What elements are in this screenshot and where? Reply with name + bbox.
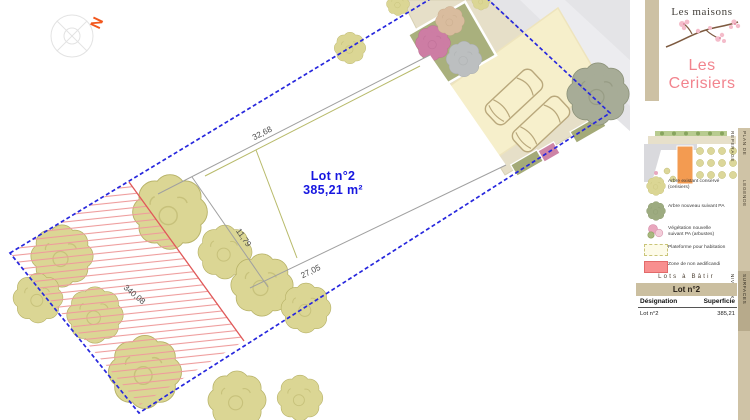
legend-item-non-aedificandi: Zone de non aedificandi [644,258,726,273]
lot-table: Désignation Superficie Lot n°2 385,21 [638,298,737,317]
tab-surfaces-niveaux: SURFACES NIVEAUX [738,274,750,330]
section-title: Lots à Bâtir [636,274,737,280]
platform-swatch [644,241,668,256]
lot-area-label: 385,21 m² [303,183,363,197]
site-plan-drawing: N 32,68 11,79 27,05 340,08 Lot n°2 385,2… [0,0,632,420]
brand-block: Les maisons Les Cerisiers [656,6,748,93]
gray-tree-icon [446,41,481,76]
shrubs-icon [644,222,668,240]
tab-legende: LEGENDE [738,180,750,216]
legend-item-existing-tree: Arbre existant conservé (cerisiers) [644,175,726,197]
legend-item-new-vegetation: Végétation nouvelle suivant PA (arbustes… [644,222,726,240]
lot-name-label: Lot n°2 [311,169,356,183]
cherry-branch-illustration [660,18,744,52]
site-plan-page: N 32,68 11,79 27,05 340,08 Lot n°2 385,2… [0,0,750,420]
overhanging-tree-icon [567,63,629,125]
dimension-bottom: 27,05 [299,262,322,280]
new-tree-icon [644,200,668,222]
brand-name: Les Cerisiers [656,57,748,93]
table-row: Lot n°2 385,21 [638,308,737,317]
existing-tree-icon [644,175,668,197]
north-compass [51,15,93,57]
legend-item-platform: Plateforme pour habitation [644,241,726,256]
row-lot-name: Lot n°2 [640,311,658,317]
zone-swatch [644,258,668,273]
info-panel: Les maisons Les Cerisiers [630,0,750,420]
tan-tree-icon [436,7,465,36]
lot-banner: Lot n°2 [636,283,737,296]
section-rail: PLAN DE REPERAGE LEGENDE SURFACES NIVEAU… [738,128,750,420]
brand-tagline: Les maisons [656,6,748,18]
col-designation: Désignation [640,298,677,305]
tab-plan-de-reperage: PLAN DE REPERAGE [738,131,750,179]
row-lot-area: 385,21 [717,311,735,317]
col-superficie: Superficie [704,298,735,305]
north-label: N [86,14,106,31]
legend-item-new-tree: Arbre nouveau suivant PA [644,200,726,222]
